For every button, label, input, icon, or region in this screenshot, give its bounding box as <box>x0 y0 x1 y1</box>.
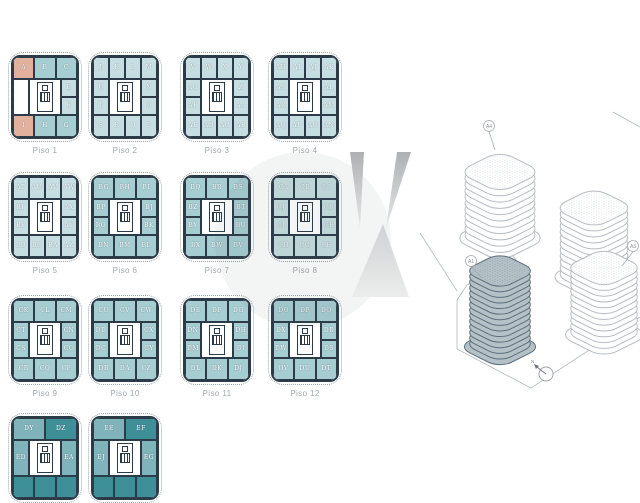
unit-cell[interactable]: AA <box>233 97 249 115</box>
unit-cell[interactable]: BE <box>13 217 29 235</box>
unit-label: G <box>64 123 69 129</box>
floor-plan[interactable]: BGBHBIBPBOBJBKBNBMBLPiso 6 <box>88 172 162 262</box>
unit-label: CD <box>324 205 334 211</box>
stair-shaft <box>37 443 53 473</box>
unit-cell[interactable]: CG <box>294 235 315 257</box>
unit-label: AG <box>188 85 198 91</box>
unit-label: V <box>191 65 196 71</box>
unit-label: BJ <box>145 205 153 211</box>
unit-label: DD <box>96 328 107 334</box>
unit-cell[interactable]: C <box>56 57 77 79</box>
unit-cell[interactable]: BD <box>13 235 29 257</box>
floor-plan[interactable]: VWXYAGAFZAAAEADACABPiso 3 <box>180 52 254 142</box>
unit-label: AA <box>236 103 246 109</box>
unit-label: CW <box>140 308 152 314</box>
unit-cell[interactable]: AR <box>273 97 289 115</box>
unit-label: O <box>146 103 151 109</box>
unit-cell[interactable]: BJ <box>141 199 157 217</box>
unit-label: BX <box>191 243 201 249</box>
unit-cell[interactable]: DA <box>114 358 135 380</box>
floor-plan[interactable]: BQBRBSBZBYBTBUBXBWBVPiso 7 <box>180 172 254 262</box>
unit-label: BN <box>98 243 109 249</box>
stair-shaft <box>209 325 225 355</box>
unit-label: CU <box>98 308 109 314</box>
unit-label: AB <box>236 123 246 129</box>
unit-cell[interactable]: CE <box>321 217 337 235</box>
unit-label: CL <box>40 308 50 314</box>
unit-cell[interactable]: AM <box>321 97 337 115</box>
unit-label: AE <box>188 123 198 129</box>
stair-shaft <box>37 325 53 355</box>
unit-label: CK <box>19 308 29 314</box>
unit-cell[interactable]: X <box>217 57 233 79</box>
unit-cell[interactable]: Y <box>233 57 249 79</box>
unit-cell[interactable]: CM <box>56 300 77 322</box>
unit-cell[interactable]: EA <box>61 440 77 477</box>
unit-label: CR <box>19 366 29 372</box>
unit-cell[interactable]: B <box>34 57 55 79</box>
unit-cell[interactable]: AO <box>305 115 321 137</box>
unit-label: I <box>22 123 25 129</box>
unit-cell[interactable]: U <box>93 79 109 97</box>
unit-cell[interactable]: AG <box>185 79 201 97</box>
stair-shaft <box>37 82 53 112</box>
unit-label: AC <box>220 123 230 129</box>
unit-label: BP <box>96 205 105 211</box>
unit-label: AL <box>324 85 333 91</box>
unit-label: CV <box>120 308 130 314</box>
unit-cell[interactable]: CT <box>13 322 29 340</box>
floor-plan[interactable]: CACBCCCJCICDCECHCGCFPiso 8 <box>268 172 342 262</box>
unit-label: Q <box>130 123 135 129</box>
unit-label: CB <box>300 185 310 191</box>
unit-cell[interactable]: CF <box>316 235 337 257</box>
unit-cell[interactable]: E <box>61 79 77 97</box>
elevator-core <box>109 440 141 477</box>
floor-label: Piso 3 <box>170 146 264 155</box>
unit-label: X <box>223 65 228 71</box>
floor-label: Piso 2 <box>78 146 172 155</box>
unit-cell[interactable]: BF <box>13 199 29 217</box>
unit-cell[interactable]: AV <box>45 177 61 199</box>
unit-cell[interactable]: AJ <box>305 57 321 79</box>
unit-cell[interactable]: M <box>141 57 157 79</box>
plan-walls: DODPDQDXDWDRDSDVDUDT <box>271 298 339 382</box>
unit-cell[interactable]: DZ <box>45 418 77 440</box>
unit-label: U <box>98 85 104 91</box>
unit-label: ED <box>16 455 26 461</box>
unit-cell[interactable]: V <box>185 57 201 79</box>
elevator-core <box>109 199 141 236</box>
unit-cell[interactable]: EE <box>93 418 125 440</box>
unit-label: BS <box>234 185 244 191</box>
floor-plan[interactable]: DODPDQDXDWDRDSDVDUDTPiso 12 <box>268 295 342 385</box>
plan-walls: AHAIAJAKASARALAMAQAPAOAN <box>271 55 339 139</box>
unit-cell[interactable]: CZ <box>136 358 157 380</box>
unit-cell[interactable]: O <box>141 97 157 115</box>
unit-label: DX <box>276 328 286 334</box>
unit-cell[interactable]: CR <box>13 358 34 380</box>
unit-cell[interactable]: CJ <box>273 199 289 217</box>
unit-cell[interactable]: DE <box>185 300 206 322</box>
unit-cell[interactable]: CY <box>141 340 157 358</box>
stair-shaft <box>117 325 133 355</box>
plan-walls: CKCLCMCTCSCNCOCRCQCP <box>11 298 79 382</box>
unit-label: CM <box>60 308 72 314</box>
unit-cell[interactable]: Z <box>233 79 249 97</box>
unit-cell[interactable]: AE <box>185 115 201 137</box>
unit-cell[interactable]: BG <box>93 177 114 199</box>
unit-label: BV <box>233 243 243 249</box>
elevator-core <box>201 79 233 116</box>
unit-label: CE <box>324 223 334 229</box>
unit-label: R <box>114 123 119 129</box>
unit-label: CC <box>321 185 331 191</box>
unit-label: E <box>67 85 72 91</box>
elevator-core <box>29 199 61 236</box>
unit-label: EJ <box>97 455 105 461</box>
unit-label: BK <box>144 223 154 229</box>
unit-cell[interactable]: ED <box>13 440 29 477</box>
unit-cell[interactable]: AH <box>273 57 289 79</box>
stair-shaft <box>37 202 53 232</box>
unit-label: CN <box>64 328 75 334</box>
unit-cell[interactable]: BZ <box>185 199 201 217</box>
unit-label: AY <box>64 223 73 229</box>
unit-cell[interactable]: DO <box>273 300 294 322</box>
unit-cell[interactable]: H <box>34 115 55 137</box>
unit-cell[interactable]: DU <box>294 358 315 380</box>
elevator-core <box>289 79 321 116</box>
elevator-core <box>109 79 141 116</box>
unit-cell[interactable]: DF <box>206 300 227 322</box>
unit-label: BA <box>48 243 58 249</box>
unit-cell[interactable]: BC <box>29 235 45 257</box>
unit-label: DO <box>278 308 289 314</box>
unit-cell[interactable]: I <box>13 115 34 137</box>
unit-label: BI <box>142 185 150 191</box>
unit-label: DW <box>275 346 287 352</box>
unit-cell[interactable]: CV <box>114 300 135 322</box>
unit-cell[interactable]: L <box>125 57 141 79</box>
unit-label: W <box>206 65 213 71</box>
unit-label: AV <box>48 185 57 191</box>
unit-label: CQ <box>40 366 51 372</box>
unit-cell[interactable]: AL <box>321 79 337 97</box>
unit-label: BE <box>16 223 26 229</box>
unit-label: DI <box>237 346 245 352</box>
unit-label: BW <box>211 243 223 249</box>
plan-walls: ATAUAVAWBFBEAXAYBDBCBAAZ <box>11 175 79 259</box>
stair-shaft <box>297 202 313 232</box>
unit-label: CI <box>277 223 285 229</box>
unit-label: F <box>67 103 72 109</box>
unit-label: DN <box>187 328 198 334</box>
unit-cell[interactable]: AU <box>29 177 45 199</box>
unit-label: BZ <box>188 205 198 211</box>
plan-walls: BQBRBSBZBYBTBUBXBWBV <box>183 175 251 259</box>
unit-cell[interactable]: DP <box>294 300 315 322</box>
unit-label: AI <box>293 65 301 71</box>
unit-label: H <box>42 123 48 129</box>
unit-cell[interactable]: AY <box>61 217 77 235</box>
unit-cell[interactable]: DV <box>273 358 294 380</box>
floor-label: Piso 10 <box>78 389 172 398</box>
unit-cell[interactable]: AS <box>273 79 289 97</box>
unit-cell[interactable]: DK <box>206 358 227 380</box>
unit-label: AD <box>204 123 214 129</box>
plan-walls: VWXYAGAFZAAAEADACAB <box>183 55 251 139</box>
unit-cell[interactable]: AI <box>289 57 305 79</box>
unit-label: DC <box>96 346 106 352</box>
unit-cell[interactable]: AZ <box>61 235 77 257</box>
unit-cell[interactable]: BO <box>93 217 109 235</box>
unit-cell[interactable]: AT <box>13 177 29 199</box>
unit-label: BF <box>16 205 26 211</box>
unit-label: AP <box>292 123 301 129</box>
unit-cell[interactable]: Q <box>125 115 141 137</box>
unit-label: DJ <box>234 366 242 372</box>
unit-cell[interactable]: AQ <box>273 115 289 137</box>
unit-cell[interactable]: DB <box>93 358 114 380</box>
floor-label: Piso 8 <box>258 266 352 275</box>
floor-label: Piso 7 <box>170 266 264 275</box>
stair-shaft <box>209 82 225 112</box>
unit-cell[interactable]: BM <box>114 235 135 257</box>
unit-cell[interactable]: BP <box>93 199 109 217</box>
unit-label: AT <box>16 185 25 191</box>
unit-label: DZ <box>56 426 66 432</box>
elevator-core <box>29 322 61 359</box>
unit-label: DA <box>120 366 130 372</box>
floor-plan[interactable]: ATAUAVAWBFBEAXAYBDBCBAAZPiso 5 <box>8 172 82 262</box>
unit-cell[interactable]: DT <box>316 358 337 380</box>
unit-cell[interactable]: EG <box>141 440 157 477</box>
unit-label: EG <box>144 455 154 461</box>
unit-cell[interactable]: G <box>56 115 77 137</box>
unit-cell[interactable]: CC <box>316 177 337 199</box>
unit-cell[interactable]: BS <box>228 177 249 199</box>
unit-cell[interactable]: AX <box>61 199 77 217</box>
unit-label: CT <box>16 328 26 334</box>
elevator-core <box>29 440 61 477</box>
unit-cell[interactable]: AC <box>217 115 233 137</box>
stair-shaft <box>297 82 313 112</box>
floor-plan[interactable]: CKCLCMCTCSCNCOCRCQCPPiso 9 <box>8 295 82 385</box>
unit-cell[interactable]: CB <box>294 177 315 199</box>
unit-cell[interactable]: BL <box>136 235 157 257</box>
unit-cell[interactable]: BY <box>185 217 201 235</box>
unit-cell[interactable]: DS <box>321 340 337 358</box>
plan-walls: ABCEFIHG <box>11 55 79 139</box>
floor-plan[interactable]: ABCEFIHGPiso 1 <box>8 52 82 142</box>
plan-walls: DEDFDGDNDMDHDIDLDKDJ <box>183 298 251 382</box>
stair-shaft <box>209 202 225 232</box>
unit-cell[interactable]: BN <box>93 235 114 257</box>
floor-plan[interactable]: EEEFEJEG <box>88 413 162 503</box>
stair-shaft <box>297 325 313 355</box>
unit-cell[interactable]: BW <box>206 235 227 257</box>
unit-cell[interactable]: BA <box>45 235 61 257</box>
unit-label: AQ <box>276 123 286 129</box>
unit-cell[interactable]: CP <box>56 358 77 380</box>
floor-label: Piso 11 <box>170 389 264 398</box>
unit-label: CF <box>321 243 331 249</box>
unit-cell[interactable]: CQ <box>34 358 55 380</box>
unit-label: Y <box>239 65 243 71</box>
unit-cell[interactable]: DY <box>13 418 45 440</box>
elevator-core <box>109 322 141 359</box>
unit-cell[interactable]: F <box>61 97 77 115</box>
unit-cell[interactable]: J <box>93 57 109 79</box>
unit-cell[interactable]: DL <box>185 358 206 380</box>
plan-walls: JKLMUTNOSRQP <box>91 55 159 139</box>
unit-cell[interactable]: CD <box>321 199 337 217</box>
plan-walls: EEEFEJEG <box>91 416 159 500</box>
unit-label: AU <box>32 185 42 191</box>
unit-cell[interactable]: DW <box>273 340 289 358</box>
unit-cell[interactable]: DX <box>273 322 289 340</box>
unit-cell[interactable]: EJ <box>93 440 109 477</box>
floor-plan[interactable]: JKLMUTNOSRQPPiso 2 <box>88 52 162 142</box>
unit-cell[interactable]: BH <box>114 177 135 199</box>
stair-shaft <box>117 202 133 232</box>
unit-label: EA <box>64 455 74 461</box>
unit-cell[interactable]: W <box>201 57 217 79</box>
unit-cell[interactable]: CK <box>13 300 34 322</box>
unit-label: DP <box>300 308 310 314</box>
unit-cell[interactable]: EF <box>125 418 157 440</box>
floor-label: Piso 6 <box>78 266 172 275</box>
unit-cell[interactable]: DI <box>233 340 249 358</box>
plan-walls: CUCVCWDDDCCXCYDBDACZ <box>91 298 159 382</box>
unit-cell[interactable]: AB <box>233 115 249 137</box>
stair-shaft <box>117 82 133 112</box>
unit-label: M <box>146 65 153 71</box>
floor-plan[interactable]: AHAIAJAKASARALAMAQAPAOANPiso 4 <box>268 52 342 142</box>
floor-plan[interactable]: DEDFDGDNDMDHDIDLDKDJPiso 11 <box>180 295 254 385</box>
unit-cell[interactable]: AN <box>321 115 337 137</box>
unit-cell[interactable]: DD <box>93 322 109 340</box>
unit-label: DG <box>233 308 244 314</box>
plan-walls: DYDZEDEA <box>11 416 79 500</box>
unit-cell[interactable]: CL <box>34 300 55 322</box>
unit-label: BG <box>99 185 109 191</box>
unit-label: CX <box>144 328 154 334</box>
unit-label: BO <box>96 223 106 229</box>
unit-label: BR <box>212 185 222 191</box>
elevator-core <box>289 199 321 236</box>
unit-label: AK <box>324 65 334 71</box>
unit-label: S <box>99 123 104 129</box>
unit-cell[interactable]: BU <box>233 217 249 235</box>
unit-cell[interactable]: CH <box>273 235 294 257</box>
unit-cell[interactable]: AP <box>289 115 305 137</box>
unit-label: DK <box>212 366 222 372</box>
unit-label: CG <box>300 243 310 249</box>
unit-label: CZ <box>141 366 151 372</box>
unit-cell[interactable]: AW <box>61 177 77 199</box>
unit-cell[interactable]: BR <box>206 177 227 199</box>
unit-cell[interactable]: CU <box>93 300 114 322</box>
unit-label: BY <box>188 223 197 229</box>
unit-label: AN <box>324 123 335 129</box>
unit-cell[interactable]: BV <box>228 235 249 257</box>
unit-cell[interactable]: CW <box>136 300 157 322</box>
unit-cell[interactable]: DH <box>233 322 249 340</box>
unit-cell[interactable]: BQ <box>185 177 206 199</box>
unit-cell[interactable]: AK <box>321 57 337 79</box>
unit-cell[interactable]: AD <box>201 115 217 137</box>
elevator-core <box>29 79 61 116</box>
unit-cell[interactable]: BK <box>141 217 157 235</box>
unit-cell[interactable]: CI <box>273 217 289 235</box>
unit-label: AF <box>188 103 198 109</box>
unit-cell[interactable]: BT <box>233 199 249 217</box>
floor-plan[interactable]: CUCVCWDDDCCXCYDBDACZPiso 10 <box>88 295 162 385</box>
unit-cell[interactable]: A <box>13 57 34 79</box>
unit-cell[interactable]: CS <box>13 340 29 358</box>
unit-label: BC <box>32 243 42 249</box>
floor-label: Piso 12 <box>258 389 352 398</box>
unit-cell[interactable]: S <box>93 115 109 137</box>
unit-label: BQ <box>191 185 201 191</box>
unit-label: BU <box>236 223 246 229</box>
floor-label: Piso 4 <box>258 146 352 155</box>
unit-label: C <box>64 65 69 71</box>
unit-label: EE <box>104 426 114 432</box>
unit-cell[interactable]: CO <box>61 340 77 358</box>
unit-label: AH <box>276 65 287 71</box>
unit-cell[interactable]: DJ <box>228 358 249 380</box>
unit-cell[interactable]: K <box>109 57 125 79</box>
unit-cell[interactable]: BI <box>136 177 157 199</box>
unit-label: J <box>100 65 103 71</box>
unit-cell[interactable]: R <box>109 115 125 137</box>
unit-cell[interactable]: DM <box>185 340 201 358</box>
unit-label: N <box>146 85 152 91</box>
unit-cell[interactable]: P <box>141 115 157 137</box>
unit-cell[interactable]: N <box>141 79 157 97</box>
unit-label: CA <box>279 185 289 191</box>
unit-label: AR <box>276 103 286 109</box>
unit-label: B <box>43 65 48 71</box>
unit-cell[interactable]: CX <box>141 322 157 340</box>
unit-label: BH <box>120 185 131 191</box>
stair-shaft <box>117 443 133 473</box>
unit-label: AZ <box>64 243 74 249</box>
unit-cell[interactable]: DG <box>228 300 249 322</box>
unit-label: AS <box>276 85 285 91</box>
unit-cell[interactable]: AF <box>185 97 201 115</box>
unit-cell[interactable]: DN <box>185 322 201 340</box>
unit-label: DL <box>191 366 201 372</box>
unit-cell[interactable]: CA <box>273 177 294 199</box>
unit-cell[interactable]: DQ <box>316 300 337 322</box>
unit-label: Z <box>239 85 244 91</box>
unit-cell[interactable]: CN <box>61 322 77 340</box>
unit-label: AW <box>63 185 74 191</box>
unit-label: DF <box>212 308 222 314</box>
unit-cell[interactable] <box>13 79 29 116</box>
unit-cell[interactable]: BX <box>185 235 206 257</box>
unit-label: BL <box>142 243 151 249</box>
unit-cell[interactable]: T <box>93 97 109 115</box>
floor-plan[interactable]: DYDZEDEA <box>8 413 82 503</box>
unit-label: EF <box>136 426 146 432</box>
unit-cell[interactable]: DC <box>93 340 109 358</box>
unit-cell[interactable]: DR <box>321 322 337 340</box>
